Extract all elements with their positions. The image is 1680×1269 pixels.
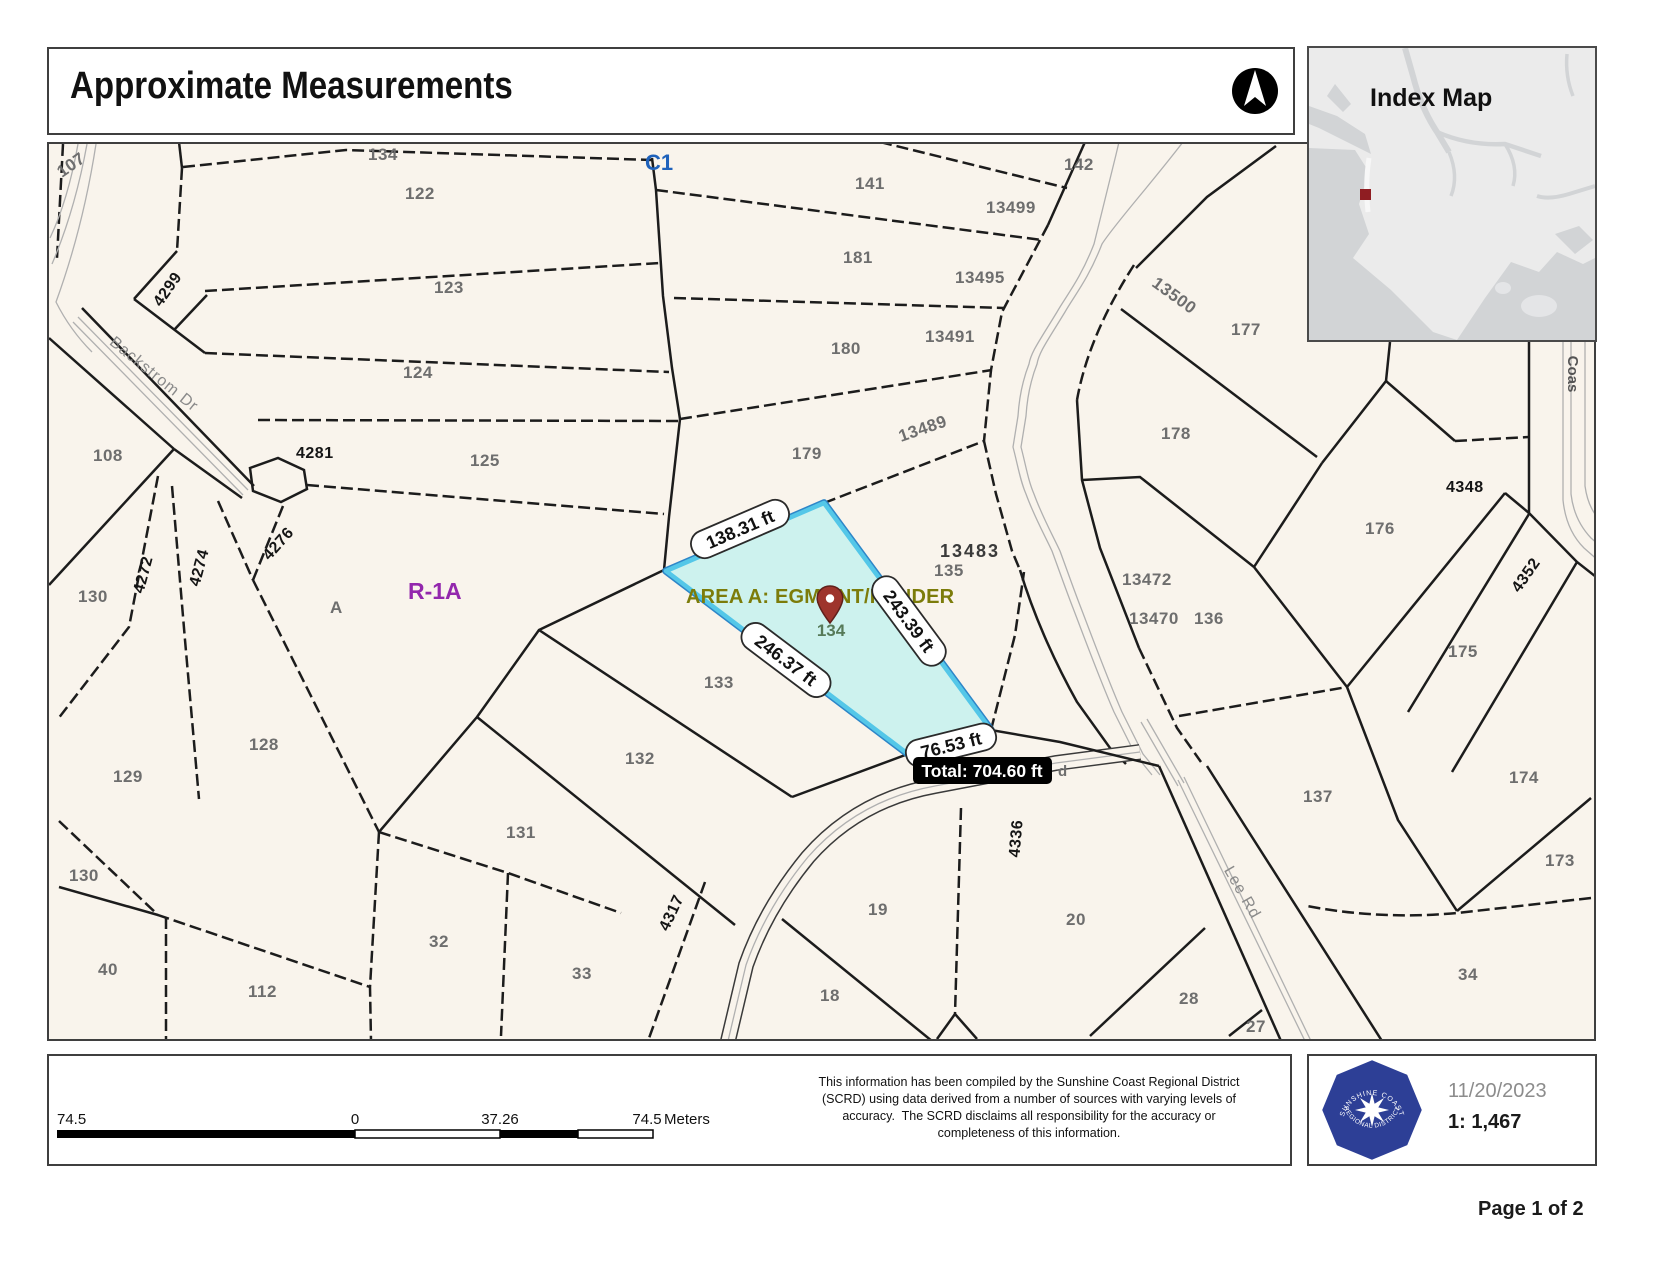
svg-text:13495: 13495 bbox=[955, 268, 1005, 287]
svg-text:33: 33 bbox=[572, 964, 592, 983]
svg-text:181: 181 bbox=[843, 248, 873, 267]
svg-text:74.5: 74.5 bbox=[57, 1111, 86, 1128]
svg-text:137: 137 bbox=[1303, 787, 1333, 806]
svg-text:180: 180 bbox=[831, 339, 861, 358]
svg-text:13472: 13472 bbox=[1122, 570, 1172, 589]
svg-text:0: 0 bbox=[351, 1111, 359, 1128]
svg-text:176: 176 bbox=[1365, 519, 1395, 538]
svg-text:Total: 704.60 ft: Total: 704.60 ft bbox=[921, 761, 1042, 781]
svg-text:13483: 13483 bbox=[940, 541, 1000, 561]
svg-text:27: 27 bbox=[1246, 1017, 1266, 1036]
svg-text:4336: 4336 bbox=[1006, 819, 1026, 858]
svg-text:123: 123 bbox=[434, 278, 464, 297]
svg-text:108: 108 bbox=[93, 446, 123, 465]
svg-text:Coas: Coas bbox=[1564, 356, 1581, 393]
svg-text:37.26: 37.26 bbox=[481, 1111, 519, 1128]
svg-text:125: 125 bbox=[470, 451, 500, 470]
svg-text:178: 178 bbox=[1161, 424, 1191, 443]
svg-text:134: 134 bbox=[817, 621, 846, 640]
svg-text:133: 133 bbox=[704, 673, 734, 692]
svg-text:177: 177 bbox=[1231, 320, 1261, 339]
svg-text:74.5: 74.5 bbox=[632, 1111, 661, 1128]
svg-text:173: 173 bbox=[1545, 851, 1575, 870]
svg-text:130: 130 bbox=[69, 866, 99, 885]
svg-text:20: 20 bbox=[1066, 910, 1086, 929]
svg-text:Meters: Meters bbox=[664, 1111, 710, 1128]
svg-text:4281: 4281 bbox=[296, 445, 334, 462]
svg-text:40: 40 bbox=[98, 960, 118, 979]
svg-text:128: 128 bbox=[249, 735, 279, 754]
svg-text:130: 130 bbox=[78, 587, 108, 606]
svg-text:A: A bbox=[330, 598, 343, 617]
svg-text:C1: C1 bbox=[645, 150, 673, 175]
svg-text:131: 131 bbox=[506, 823, 536, 842]
svg-text:122: 122 bbox=[405, 184, 435, 203]
svg-text:129: 129 bbox=[113, 767, 143, 786]
svg-text:32: 32 bbox=[429, 932, 449, 951]
svg-text:124: 124 bbox=[403, 363, 433, 382]
svg-text:19: 19 bbox=[868, 900, 888, 919]
svg-text:13499: 13499 bbox=[986, 198, 1036, 217]
svg-text:4348: 4348 bbox=[1446, 479, 1484, 496]
svg-text:13470: 13470 bbox=[1129, 609, 1179, 628]
svg-text:134: 134 bbox=[368, 145, 398, 164]
svg-text:34: 34 bbox=[1458, 965, 1478, 984]
svg-text:135: 135 bbox=[934, 561, 964, 580]
svg-text:132: 132 bbox=[625, 749, 655, 768]
svg-text:d: d bbox=[1058, 763, 1067, 780]
svg-text:13491: 13491 bbox=[925, 327, 975, 346]
svg-text:R-1A: R-1A bbox=[408, 578, 462, 604]
svg-text:112: 112 bbox=[248, 982, 277, 1001]
svg-text:136: 136 bbox=[1194, 609, 1224, 628]
svg-text:142: 142 bbox=[1064, 155, 1094, 174]
svg-text:18: 18 bbox=[820, 986, 840, 1005]
svg-text:141: 141 bbox=[855, 174, 885, 193]
svg-text:174: 174 bbox=[1509, 768, 1539, 787]
svg-text:175: 175 bbox=[1448, 642, 1478, 661]
svg-text:179: 179 bbox=[792, 444, 822, 463]
svg-text:28: 28 bbox=[1179, 989, 1199, 1008]
